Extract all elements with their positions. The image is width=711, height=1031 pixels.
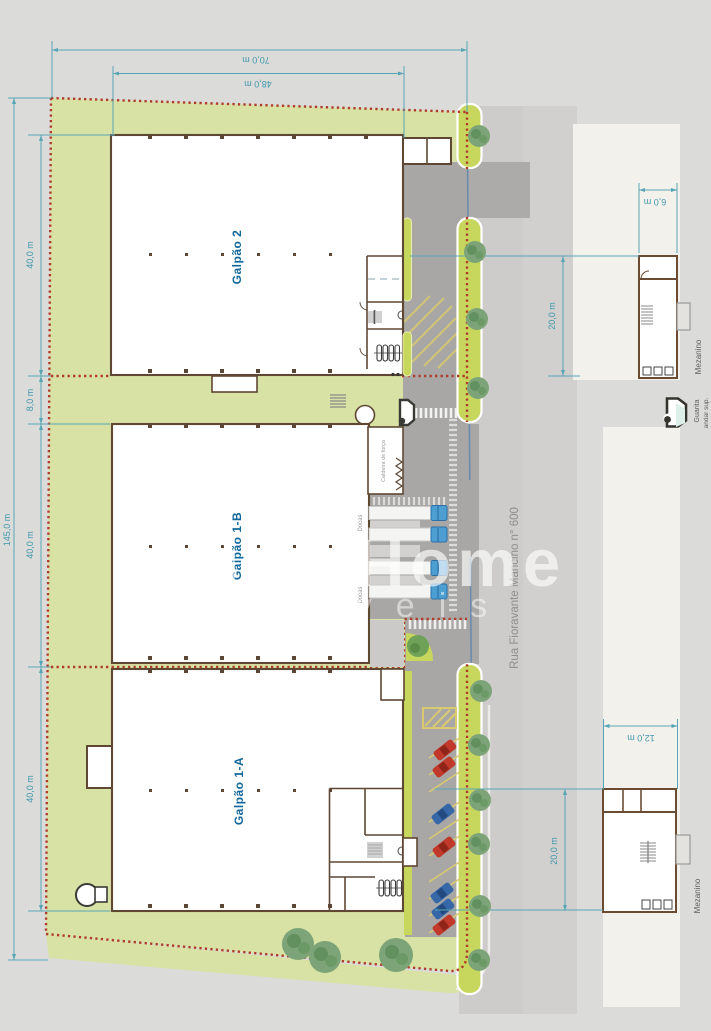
- svg-text:Galpão 1-A: Galpão 1-A: [232, 757, 246, 825]
- svg-text:Galpão 2: Galpão 2: [230, 230, 244, 285]
- svg-text:40,0 m: 40,0 m: [25, 531, 35, 559]
- svg-text:8,0 m: 8,0 m: [25, 389, 35, 412]
- svg-text:48,0 m: 48,0 m: [244, 79, 272, 89]
- svg-text:6,0 m: 6,0 m: [644, 197, 667, 207]
- svg-text:20,0 m: 20,0 m: [547, 302, 557, 330]
- svg-text:Guarita: Guarita: [694, 399, 701, 422]
- svg-text:40,0 m: 40,0 m: [25, 241, 35, 269]
- svg-text:Mezanino: Mezanino: [694, 339, 703, 374]
- svg-text:145,0 m: 145,0 m: [2, 514, 12, 547]
- svg-text:Mezanino: Mezanino: [693, 878, 702, 913]
- svg-text:20,0 m: 20,0 m: [549, 837, 559, 865]
- svg-text:70,0 m: 70,0 m: [242, 55, 270, 65]
- svg-text:40,0 m: 40,0 m: [25, 775, 35, 803]
- svg-text:andar sup.: andar sup.: [703, 397, 710, 428]
- svg-text:Caldeira de força: Caldeira de força: [381, 439, 387, 482]
- svg-text:imóveis: imóveis: [228, 587, 511, 625]
- svg-text:12,0 m: 12,0 m: [627, 733, 655, 743]
